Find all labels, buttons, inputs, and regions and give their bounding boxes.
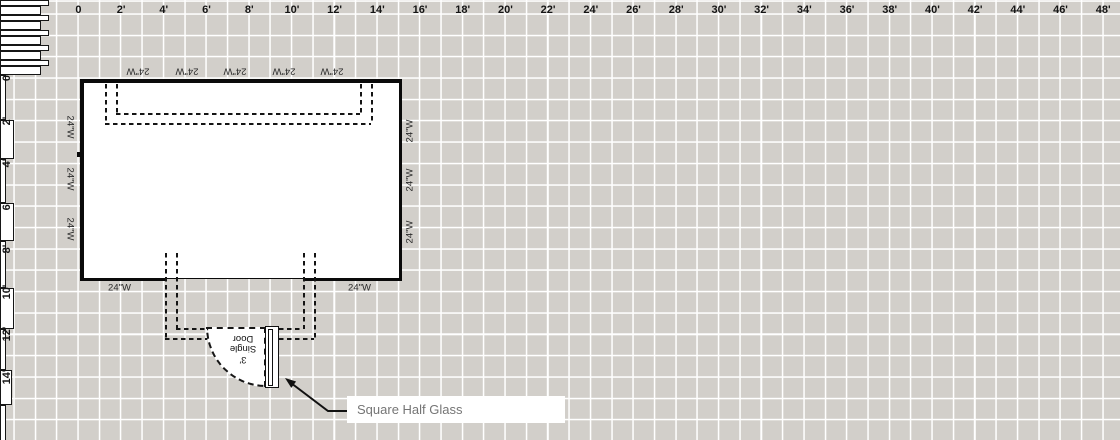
ruler-top-label: 12' — [327, 4, 342, 16]
cabinet-label: 24"W — [405, 220, 416, 243]
ruler-top-label: 48' — [1096, 4, 1111, 16]
ruler-left-label: 8' — [1, 244, 13, 253]
wall-joint-tick — [77, 152, 84, 157]
ruler-top-label: 2' — [117, 4, 126, 16]
ruler-top-label: 44' — [1010, 4, 1025, 16]
opening-dash — [314, 253, 316, 339]
ruler-top-label: 20' — [498, 4, 513, 16]
ruler-top-label: 18' — [455, 4, 470, 16]
ruler-top-label: 36' — [840, 4, 855, 16]
cabinet-label: 24"W — [405, 119, 416, 142]
cabinet-top-front[interactable] — [0, 36, 41, 46]
cabinet-left-front[interactable] — [0, 120, 14, 159]
ruler-top-label: 16' — [413, 4, 428, 16]
ruler-top-label: 34' — [797, 4, 812, 16]
opening-dash — [176, 253, 178, 329]
annotation-label[interactable]: Square Half Glass — [347, 396, 565, 423]
wall-top[interactable] — [80, 79, 402, 83]
wall-bottom-left[interactable] — [80, 278, 166, 282]
room-interior[interactable] — [82, 81, 400, 279]
cabinet-label: 24"W — [127, 66, 150, 77]
ruler-left-label: 6' — [1, 202, 13, 211]
ruler-top-label: 32' — [754, 4, 769, 16]
ruler-left-label: 2' — [1, 116, 13, 125]
ruler-left-label: 10' — [1, 284, 13, 299]
cabinet-label: 24"W — [224, 66, 247, 77]
counter-dash-outline — [105, 123, 371, 125]
counter-dash-outline — [105, 84, 107, 124]
ruler-top-label: 4' — [159, 4, 168, 16]
ruler-top-label: 14' — [370, 4, 385, 16]
cabinet-label: 24"W — [348, 283, 371, 294]
opening-dash — [176, 328, 206, 330]
cabinet-top-front[interactable] — [0, 21, 41, 31]
cabinet-top-front[interactable] — [0, 51, 41, 61]
ruler-top-label: 22' — [541, 4, 556, 16]
counter-dash-outline — [360, 84, 362, 114]
cabinet-label: 24"W — [65, 115, 76, 138]
door-label: 3' Single Door — [230, 332, 256, 364]
design-canvas[interactable]: 3' Single Door Square Half Glass 02'4'6'… — [0, 0, 1120, 440]
cabinet-label: 24"W — [108, 283, 131, 294]
opening-dash — [303, 253, 305, 329]
opening-dash — [165, 253, 167, 339]
counter-dash-outline — [116, 113, 360, 115]
ruler-top-label: 0 — [75, 4, 81, 16]
wall-left[interactable] — [80, 79, 84, 281]
cabinet-top-front[interactable] — [0, 66, 41, 76]
ruler-top-label: 42' — [968, 4, 983, 16]
counter-dash-outline — [116, 84, 118, 114]
cabinet-label: 24"W — [272, 66, 295, 77]
wall-bottom-right[interactable] — [305, 278, 402, 282]
ruler-top-label: 8' — [245, 4, 254, 16]
annotation-text: Square Half Glass — [357, 402, 463, 417]
cabinet-label: 24"W — [405, 169, 416, 192]
cabinet-label: 24"W — [65, 217, 76, 240]
ruler-left-label: 12' — [1, 327, 13, 342]
cabinet-label: 24"W — [175, 66, 198, 77]
ruler-top-label: 10' — [284, 4, 299, 16]
ruler-left-label: 4' — [1, 159, 13, 168]
counter-dash-outline — [371, 84, 373, 124]
cabinet-label: 24"W — [321, 66, 344, 77]
ruler-top-label: 28' — [669, 4, 684, 16]
opening-dash — [165, 338, 208, 340]
ruler-top-label: 40' — [925, 4, 940, 16]
cabinet-right-back[interactable] — [0, 405, 6, 440]
cabinet-top-front[interactable] — [0, 6, 41, 16]
ruler-top-label: 30' — [711, 4, 726, 16]
ruler-top-label: 24' — [583, 4, 598, 16]
ruler-top-label: 46' — [1053, 4, 1068, 16]
ruler-top-label: 26' — [626, 4, 641, 16]
cabinet-left-back[interactable] — [0, 75, 6, 120]
opening-dash — [279, 328, 303, 330]
wall-opening-threshold — [166, 278, 305, 279]
opening-dash — [279, 338, 314, 340]
ruler-top-label: 6' — [202, 4, 211, 16]
ruler-left-label: 14' — [1, 369, 13, 384]
cabinet-label: 24"W — [65, 168, 76, 191]
wall-right[interactable] — [399, 79, 403, 281]
ruler-left-label: 0 — [1, 75, 13, 81]
ruler-top-label: 38' — [882, 4, 897, 16]
